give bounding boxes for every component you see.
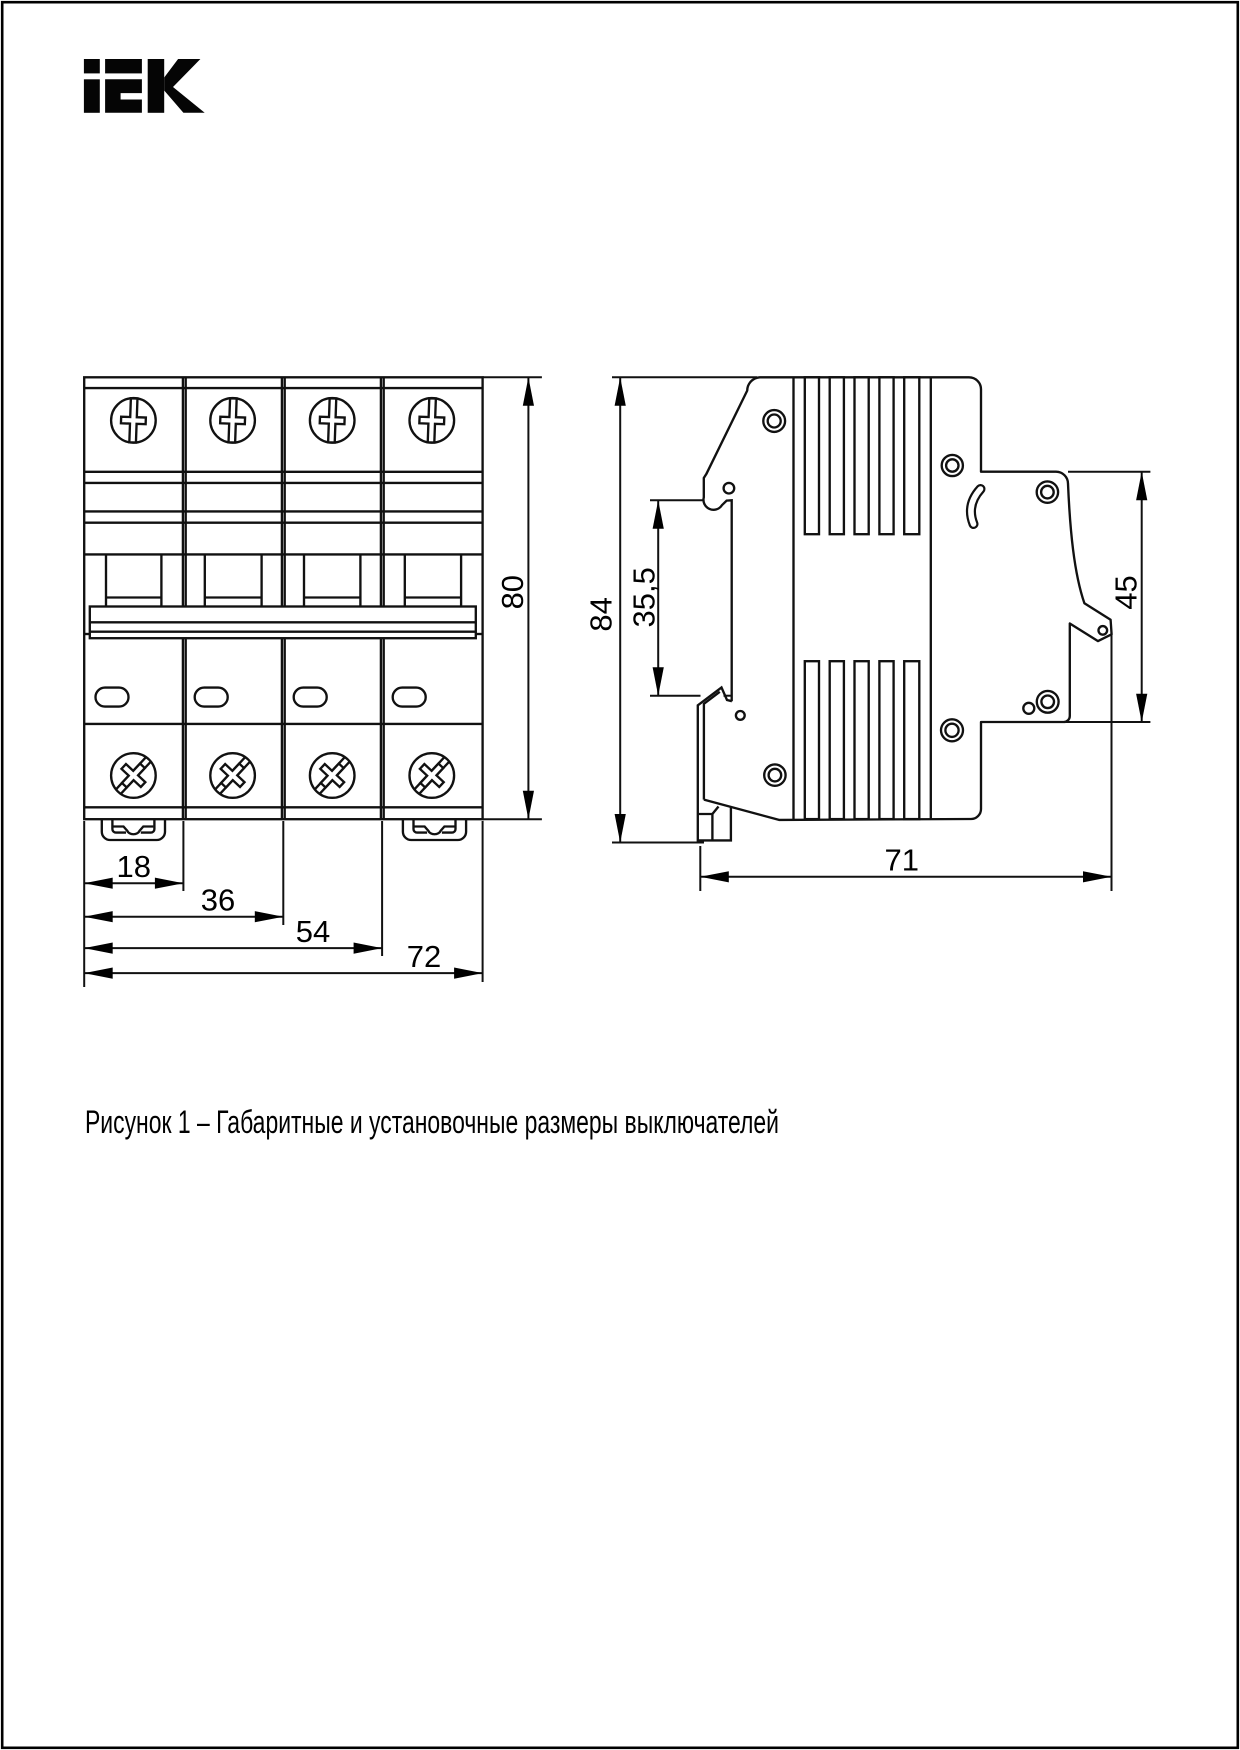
svg-text:71: 71 [884, 843, 918, 878]
svg-text:35,5: 35,5 [626, 567, 661, 627]
svg-text:18: 18 [117, 849, 151, 884]
svg-text:84: 84 [583, 597, 618, 631]
svg-text:45: 45 [1109, 575, 1144, 609]
svg-text:72: 72 [407, 939, 441, 974]
svg-text:54: 54 [296, 914, 330, 949]
svg-text:Рисунок 1 – Габаритные и устан: Рисунок 1 – Габаритные и установочные ра… [85, 1104, 779, 1140]
svg-text:80: 80 [495, 575, 530, 609]
svg-text:36: 36 [201, 882, 235, 917]
